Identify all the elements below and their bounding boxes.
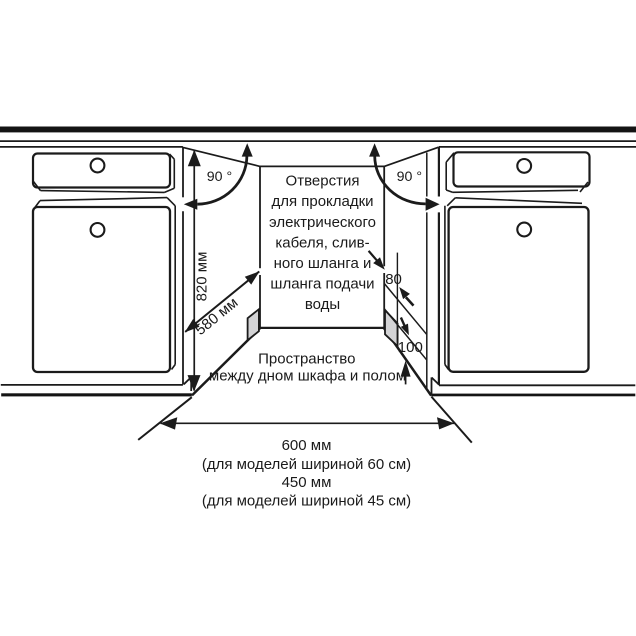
svg-text:ного шланга и: ного шланга и xyxy=(274,255,372,272)
svg-text:электрического: электрического xyxy=(269,214,376,231)
svg-text:90 °: 90 ° xyxy=(397,169,422,185)
svg-text:(для моделей шириной 45 см): (для моделей шириной 45 см) xyxy=(202,492,411,509)
svg-text:кабеля, слив-: кабеля, слив- xyxy=(275,234,369,251)
svg-text:для прокладки: для прокладки xyxy=(271,193,373,210)
svg-text:(для моделей шириной 60 см): (для моделей шириной 60 см) xyxy=(202,456,411,473)
svg-text:450 мм: 450 мм xyxy=(282,474,332,491)
svg-text:Отверстия: Отверстия xyxy=(286,173,360,190)
svg-text:600 мм: 600 мм xyxy=(282,437,332,454)
svg-text:820 мм: 820 мм xyxy=(194,252,211,302)
svg-text:воды: воды xyxy=(305,296,340,313)
svg-text:80: 80 xyxy=(385,271,402,288)
svg-text:90 °: 90 ° xyxy=(207,169,232,185)
svg-text:между дном шкафа и полом: между дном шкафа и полом xyxy=(209,368,406,385)
svg-text:Пространство: Пространство xyxy=(258,350,355,367)
svg-text:шланга подачи: шланга подачи xyxy=(270,276,374,293)
svg-text:100: 100 xyxy=(398,339,423,356)
